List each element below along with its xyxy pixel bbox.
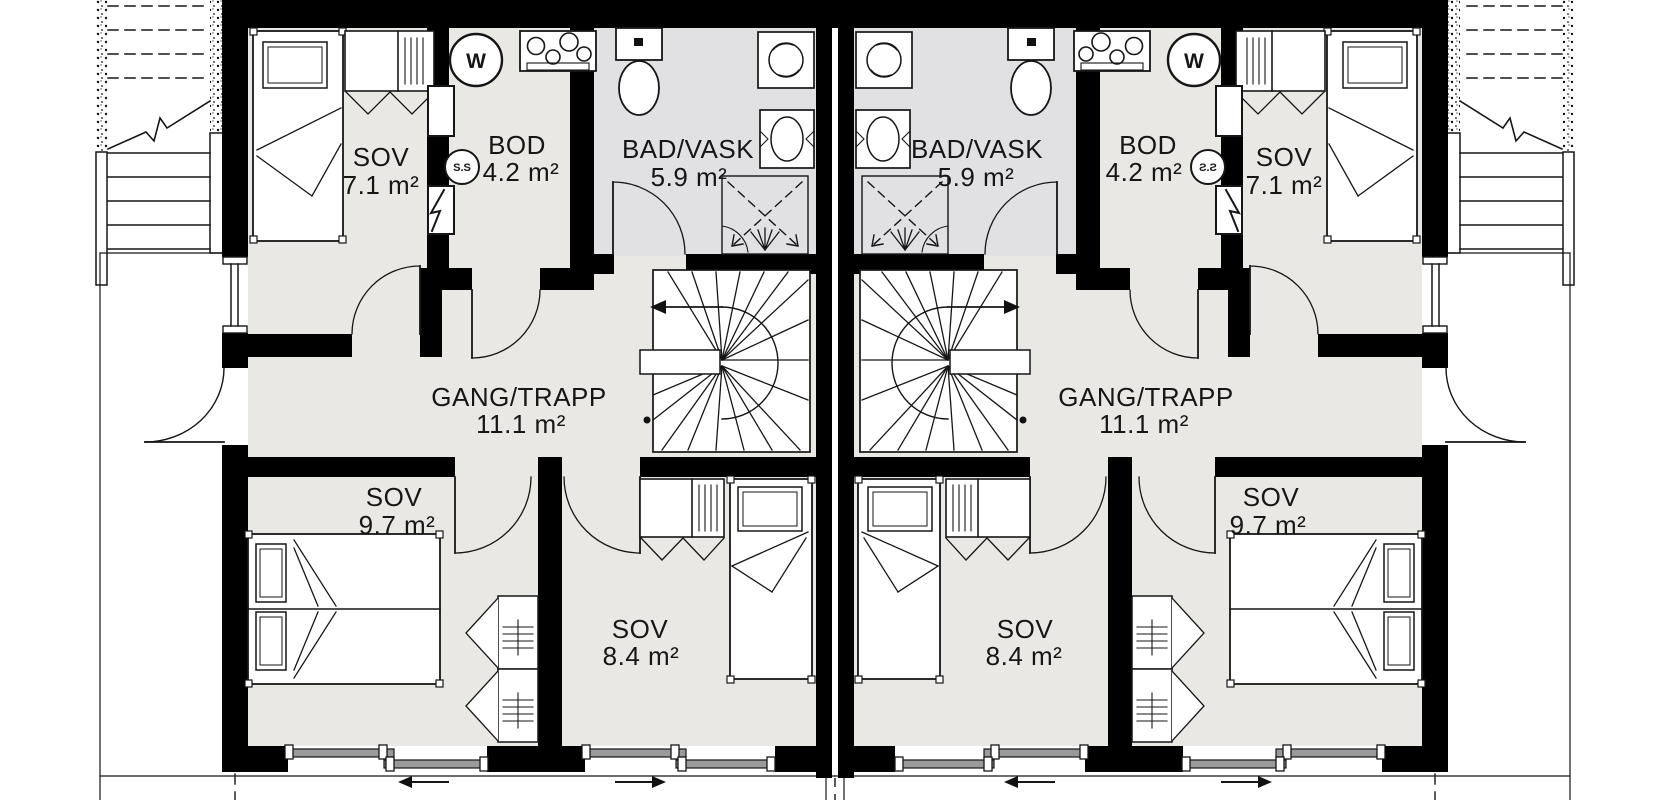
room-label-sov71-right: SOV: [1256, 142, 1313, 172]
room-label-bod-right: BOD: [1119, 130, 1177, 160]
room-label-bod-left: BOD: [488, 130, 546, 160]
room-label-bad-left: BAD/VASK: [622, 134, 754, 164]
room-label-bad-right: BAD/VASK: [911, 134, 1043, 164]
entry-door: [145, 368, 224, 442]
washing-machine: [760, 110, 814, 168]
room-area-gang-right: 11.1 m²: [1099, 409, 1189, 439]
room-label-gang-left: GANG/TRAPP: [431, 382, 606, 412]
room-area-bod-left: 4.2 m²: [483, 157, 560, 187]
room-area-bad-right: 5.9 m²: [938, 162, 1015, 192]
worktop-sink-icon: [520, 31, 596, 71]
interior-stair: [640, 270, 810, 452]
svg-text:W: W: [466, 50, 486, 73]
room-label-sov71-left: SOV: [353, 142, 410, 172]
window-slide-arrows: [398, 776, 666, 788]
room-area-sov97-left: 9.7 m²: [359, 510, 436, 540]
single-bed-2: [727, 476, 815, 683]
room-label-sov84-right: SOV: [997, 614, 1054, 644]
side-window: [222, 257, 248, 333]
room-area-bod-right: 4.2 m²: [1106, 157, 1183, 187]
room-area-sov71-right: 7.1 m²: [1246, 170, 1323, 200]
bath-sink: [758, 32, 814, 88]
water-heater: W: [450, 34, 502, 86]
room-area-gang-left: 11.1 m²: [476, 409, 566, 439]
party-wall-base: [826, 778, 844, 800]
room-area-sov84-right: 8.4 m²: [986, 641, 1063, 671]
room-area-sov71-left: 7.1 m²: [343, 170, 420, 200]
room-label-sov84-left: SOV: [612, 614, 669, 644]
room-label-sov97-right: SOV: [1243, 482, 1300, 512]
exterior-stair: [95, 0, 223, 285]
floor-plan-canvas: W S.S: [0, 0, 1670, 800]
room-label-sov97-left: SOV: [366, 482, 423, 512]
floor-plan-page: W S.S: [0, 0, 1670, 800]
room-area-sov97-right: 9.7 m²: [1230, 510, 1307, 540]
room-label-gang-right: GANG/TRAPP: [1058, 382, 1233, 412]
bottom-window-1: [285, 745, 488, 772]
double-bed: [245, 531, 443, 687]
room-area-sov84-left: 8.4 m²: [603, 641, 680, 671]
room-area-bad-left: 5.9 m²: [651, 162, 728, 192]
svg-text:S.S: S.S: [453, 162, 471, 174]
single-bed: [250, 28, 346, 243]
toilet: [616, 28, 662, 115]
bottom-window-2: [582, 745, 775, 772]
